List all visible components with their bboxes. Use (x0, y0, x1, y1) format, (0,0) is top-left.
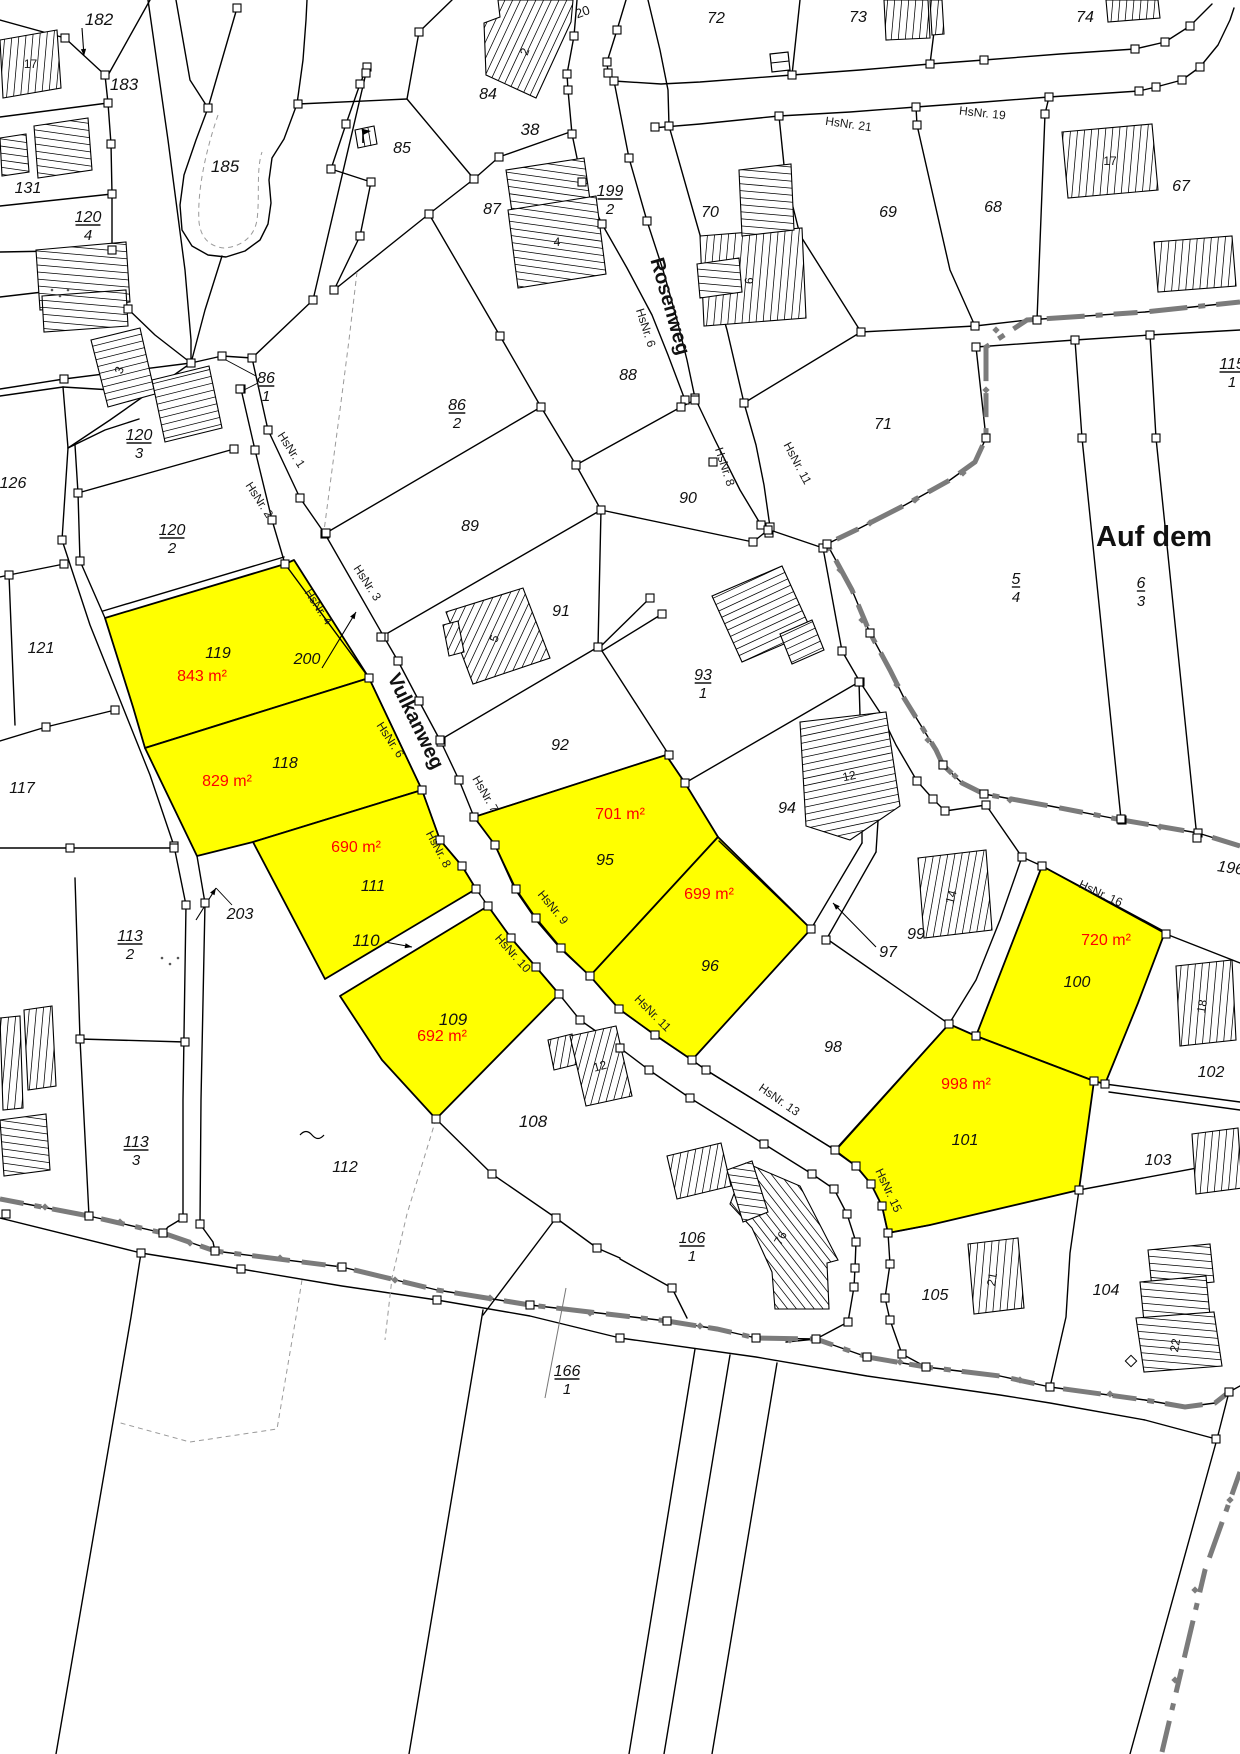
svg-text:115: 115 (1219, 356, 1240, 373)
svg-text:120: 120 (159, 522, 186, 539)
svg-text:829 m²: 829 m² (202, 773, 252, 790)
svg-text:5: 5 (1012, 571, 1021, 588)
svg-text:22: 22 (1167, 1337, 1183, 1353)
svg-text:104: 104 (1093, 1282, 1120, 1299)
svg-text:88: 88 (619, 367, 637, 384)
svg-text:4: 4 (84, 227, 92, 244)
svg-text:117: 117 (9, 780, 36, 797)
svg-text:2: 2 (452, 415, 462, 432)
svg-text:93: 93 (694, 667, 712, 684)
svg-text:84: 84 (479, 86, 497, 103)
svg-text:74: 74 (1076, 9, 1094, 26)
svg-text:3: 3 (132, 1152, 141, 1169)
svg-text:108: 108 (519, 1112, 548, 1131)
svg-text:85: 85 (393, 140, 411, 157)
svg-text:Auf dem: Auf dem (1096, 521, 1212, 553)
svg-text:203: 203 (226, 906, 254, 923)
svg-text:166: 166 (554, 1363, 581, 1380)
svg-text:1: 1 (1228, 374, 1236, 391)
svg-text:1: 1 (688, 1248, 696, 1265)
svg-text:38: 38 (521, 120, 540, 139)
svg-text:131: 131 (15, 180, 42, 197)
svg-text:98: 98 (824, 1039, 842, 1056)
svg-text:126: 126 (0, 475, 26, 492)
svg-text:68: 68 (984, 199, 1002, 216)
svg-text:99: 99 (907, 926, 925, 943)
svg-text:1: 1 (699, 685, 707, 702)
svg-text:998 m²: 998 m² (941, 1076, 991, 1093)
svg-text:121: 121 (28, 640, 55, 657)
svg-text:105: 105 (922, 1287, 949, 1304)
svg-text:101: 101 (952, 1132, 979, 1149)
svg-text:96: 96 (701, 958, 719, 975)
svg-text:1: 1 (563, 1381, 571, 1398)
svg-text:118: 118 (272, 755, 298, 772)
svg-text:17: 17 (1103, 154, 1117, 168)
svg-text:113: 113 (117, 928, 143, 945)
svg-text:71: 71 (874, 416, 892, 433)
svg-text:72: 72 (707, 10, 725, 27)
svg-text:3: 3 (135, 445, 144, 462)
svg-text:1: 1 (262, 388, 270, 405)
svg-text:21: 21 (984, 1271, 1000, 1287)
svg-text:199: 199 (597, 183, 624, 200)
svg-text:109: 109 (439, 1010, 468, 1029)
svg-text:4: 4 (554, 235, 561, 249)
svg-text:701 m²: 701 m² (595, 806, 645, 823)
svg-text:67: 67 (1172, 178, 1191, 195)
svg-text:86: 86 (448, 397, 466, 414)
svg-text:86: 86 (257, 370, 275, 387)
svg-text:73: 73 (849, 9, 867, 26)
svg-text:18: 18 (1194, 998, 1210, 1014)
svg-text:91: 91 (552, 603, 570, 620)
svg-text:6: 6 (1137, 575, 1146, 592)
svg-text:119: 119 (205, 645, 231, 662)
svg-text:90: 90 (679, 490, 697, 507)
svg-text:843 m²: 843 m² (177, 668, 227, 685)
svg-text:113: 113 (123, 1134, 149, 1151)
svg-text:87: 87 (483, 201, 502, 218)
svg-text:3: 3 (1137, 593, 1146, 610)
svg-text:106: 106 (679, 1230, 706, 1247)
svg-text:120: 120 (126, 427, 153, 444)
svg-text:690 m²: 690 m² (331, 839, 381, 856)
svg-text:17: 17 (24, 57, 38, 71)
svg-text:182: 182 (85, 10, 114, 29)
svg-text:2: 2 (125, 946, 135, 963)
svg-text:102: 102 (1198, 1064, 1225, 1081)
svg-text:185: 185 (211, 157, 240, 176)
svg-text:111: 111 (361, 878, 385, 895)
svg-text:720 m²: 720 m² (1081, 932, 1131, 949)
svg-text:699 m²: 699 m² (684, 886, 734, 903)
svg-text:200: 200 (293, 651, 321, 668)
svg-text:89: 89 (461, 518, 479, 535)
svg-text:100: 100 (1064, 974, 1091, 991)
svg-text:2: 2 (605, 201, 615, 218)
svg-text:112: 112 (332, 1159, 358, 1176)
svg-text:110: 110 (352, 931, 380, 950)
svg-text:92: 92 (551, 737, 569, 754)
svg-text:692 m²: 692 m² (417, 1028, 467, 1045)
svg-text:95: 95 (596, 852, 614, 869)
svg-text:4: 4 (1012, 589, 1020, 606)
svg-text:69: 69 (879, 204, 897, 221)
svg-text:120: 120 (75, 209, 102, 226)
svg-text:70: 70 (701, 204, 719, 221)
svg-text:2: 2 (167, 540, 177, 557)
svg-text:94: 94 (778, 800, 796, 817)
svg-text:103: 103 (1145, 1152, 1172, 1169)
svg-text:97: 97 (879, 944, 898, 961)
svg-text:183: 183 (110, 75, 139, 94)
